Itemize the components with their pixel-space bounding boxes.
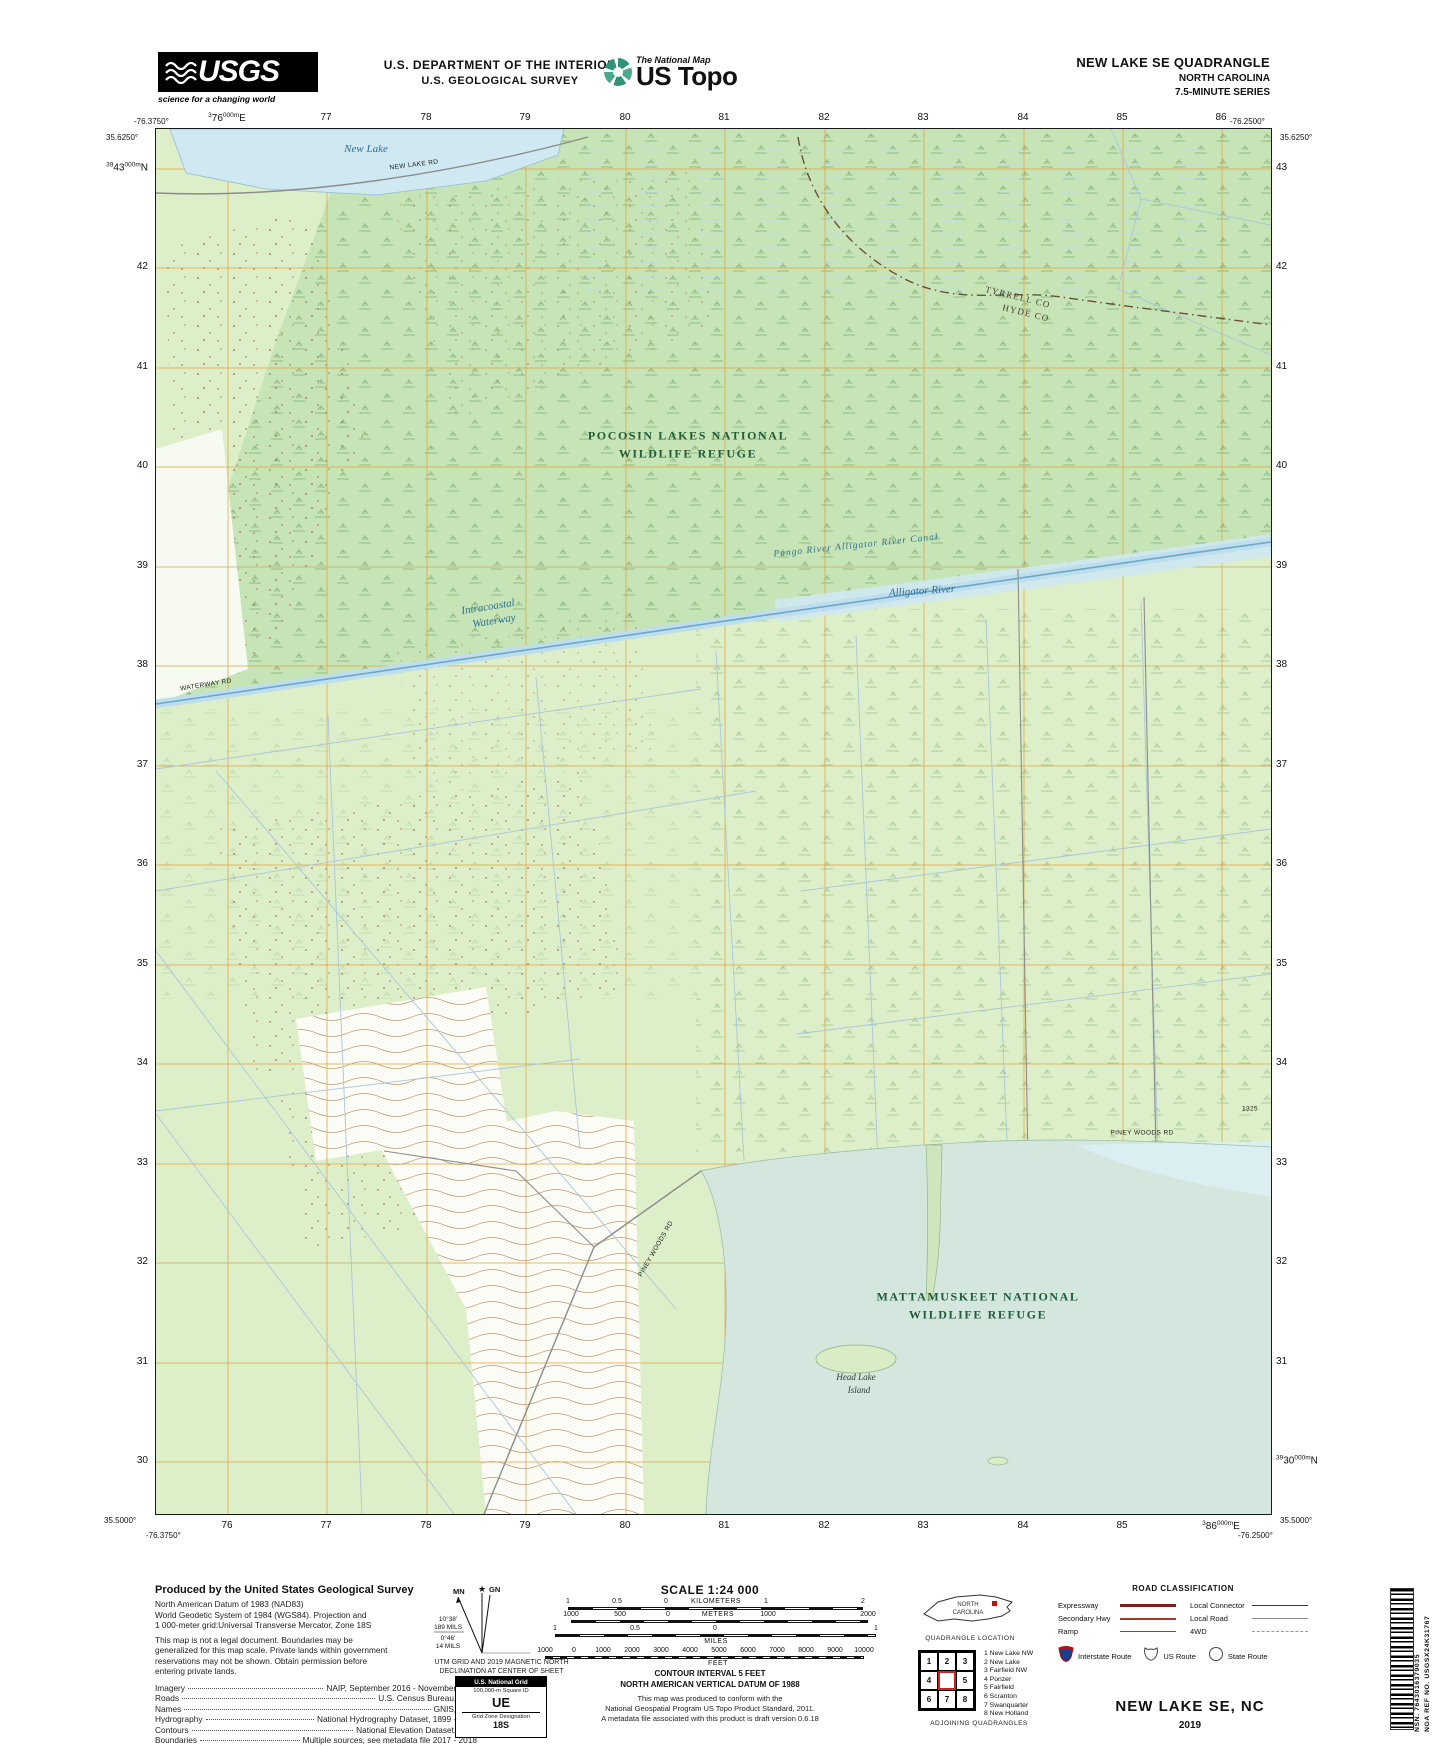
grid-label-left: 40 <box>137 460 148 471</box>
adjoining-cell-4: 4 <box>920 1671 938 1690</box>
corner-coord-ne-lat: 35.6250° <box>1280 133 1312 142</box>
scalebar-tick: 9000 <box>827 1647 843 1654</box>
grid-label-bottom: 84 <box>1017 1520 1028 1531</box>
scalebar-stripe <box>555 1634 876 1637</box>
road-class-label: Ramp <box>1058 1627 1120 1636</box>
grid-label-right: 40 <box>1276 460 1287 471</box>
usgs-tagline: science for a changing world <box>158 94 338 104</box>
scalebar-tick: 7000 <box>769 1647 785 1654</box>
adjoining-name: 4 Ponzer <box>984 1676 1068 1685</box>
scalebar-tick: 0 <box>664 1598 668 1605</box>
grid-label-top: 78 <box>420 112 431 123</box>
grid-labels-right: 434241403938373635343332313930000mN <box>1274 128 1320 1513</box>
quad-name: NEW LAKE SE QUADRANGLE <box>950 55 1270 70</box>
road-class-line-fourwd <box>1252 1631 1308 1632</box>
credit-row-roads: RoadsU.S. Census Bureau, 2016 <box>155 1693 477 1704</box>
grid-label-top: 85 <box>1116 112 1127 123</box>
grid-label-bottom: 82 <box>818 1520 829 1531</box>
scalebar-stripe <box>545 1656 864 1659</box>
road-class-label: Expressway <box>1058 1601 1120 1610</box>
corner-coord-se-lon: -76.2500° <box>1238 1531 1273 1540</box>
grid-label-top: 82 <box>818 112 829 123</box>
adjoining-names: 1 New Lake NW2 New Lake3 Fairfield NW4 P… <box>984 1650 1068 1719</box>
svg-text:GN: GN <box>489 1585 500 1594</box>
shield-interstate-icon <box>1058 1645 1074 1667</box>
grid-labels-left: 3943000mN42414039383736353433323130 <box>104 128 150 1513</box>
road-class-label: Secondary Hwy <box>1058 1614 1120 1623</box>
usgs-logo: USGS <box>158 52 318 92</box>
grid-label-left: 35 <box>137 958 148 969</box>
corner-coord-sw-lon: -76.3750° <box>146 1531 181 1540</box>
road-class-line-connector <box>1252 1605 1308 1606</box>
grid-label-top: 84 <box>1017 112 1028 123</box>
grid-labels-bottom: 76777879808182838485386000mE <box>155 1520 1270 1534</box>
adjoining-name: 7 Swanquarter <box>984 1702 1068 1711</box>
scalebar-tick: 2000 <box>624 1647 640 1654</box>
grid-label-bottom: 80 <box>619 1520 630 1531</box>
map-canvas: New LakeNEW LAKE RDPOCOSIN LAKES NATIONA… <box>155 128 1272 1515</box>
national-map-icon <box>604 58 632 86</box>
usgs-wave-icon <box>164 58 198 86</box>
national-map-logo: The National Map US Topo <box>604 55 737 88</box>
adjoining-grid: 12345678 <box>918 1650 976 1711</box>
road-class-label: Local Road <box>1190 1614 1252 1623</box>
scalebar-unit: FEET <box>708 1660 728 1667</box>
road-class-row-ramp: Ramp <box>1058 1625 1176 1638</box>
vertical-datum: NORTH AMERICAN VERTICAL DATUM OF 1988 <box>520 1679 900 1690</box>
conformance-note: This map was produced to conform with th… <box>520 1694 900 1724</box>
scale-bars: 10.5012KILOMETERS1000500010002000METERS1… <box>520 1599 900 1663</box>
credit-leader <box>182 1698 375 1699</box>
grid-label-bottom: 78 <box>420 1520 431 1531</box>
scalebar-unit: METERS <box>702 1611 734 1618</box>
route-shields: Interstate RouteUS RouteState Route <box>1058 1645 1308 1667</box>
credit-row-imagery: ImageryNAIP, September 2016 - November 2… <box>155 1683 477 1694</box>
shield-interstate: Interstate Route <box>1058 1645 1131 1667</box>
road-classification-title: ROAD CLASSIFICATION <box>1058 1584 1308 1593</box>
barcode-nsn: NSN. 7643016379035 <box>1414 1582 1421 1732</box>
topo-map-graphic <box>156 129 1271 1514</box>
svg-text:NORTH: NORTH <box>957 1602 978 1608</box>
road-class-row-expressway: Expressway <box>1058 1599 1176 1612</box>
grid-label-top: 83 <box>917 112 928 123</box>
scalebar-tick: 2 <box>861 1598 865 1605</box>
grid-label-left: 31 <box>137 1356 148 1367</box>
adjoining-name: 1 New Lake NW <box>984 1650 1068 1659</box>
scalebar-tick: 1000 <box>595 1647 611 1654</box>
credit-rows: ImageryNAIP, September 2016 - November 2… <box>155 1683 477 1746</box>
contour-interval: CONTOUR INTERVAL 5 FEET <box>520 1668 900 1679</box>
scalebar-tick: 0 <box>713 1625 717 1632</box>
corner-coord-se-lat: 35.5000° <box>1280 1516 1312 1525</box>
road-class-row-connector: Local Connector <box>1190 1599 1308 1612</box>
contour-note: CONTOUR INTERVAL 5 FEET NORTH AMERICAN V… <box>520 1668 900 1690</box>
adjoining-name: 8 New Holland <box>984 1710 1068 1719</box>
scalebar-tick: 0.5 <box>630 1625 640 1632</box>
grid-label-left: 37 <box>137 759 148 770</box>
scalebar-tick: 1000 <box>537 1647 553 1654</box>
svg-text:189 MILS: 189 MILS <box>434 1624 462 1631</box>
scalebar-tick: 0 <box>666 1611 670 1618</box>
scalebar-tick: 500 <box>614 1611 626 1618</box>
scalebar-tick: 4000 <box>682 1647 698 1654</box>
grid-label-top: 81 <box>718 112 729 123</box>
credit-row-boundaries: BoundariesMultiple sources; see metadata… <box>155 1735 477 1746</box>
corner-coord-nw-lon: -76.3750° <box>134 117 169 126</box>
credit-value: Multiple sources; see metadata file 2017… <box>303 1735 477 1746</box>
road-class-label: 4WD <box>1190 1627 1252 1636</box>
credit-key: Roads <box>155 1693 179 1704</box>
scalebar-stripe <box>568 1607 863 1610</box>
scalebar-tick: 1 <box>566 1598 570 1605</box>
scalebar-miles: 10.501MILES <box>520 1626 900 1639</box>
scalebar-unit: KILOMETERS <box>691 1598 741 1605</box>
credit-key: Boundaries <box>155 1735 197 1746</box>
credit-row-hydrography: HydrographyNational Hydrography Dataset,… <box>155 1714 477 1725</box>
adjoining-name: 3 Fairfield NW <box>984 1667 1068 1676</box>
grid-label-left: 3943000mN <box>106 161 148 173</box>
road-class-line-secondary <box>1120 1618 1176 1620</box>
grid-label-bottom: 76 <box>221 1520 232 1531</box>
scalebar-tick: 3000 <box>653 1647 669 1654</box>
grid-label-left: 34 <box>137 1057 148 1068</box>
grid-label-right: 36 <box>1276 858 1287 869</box>
svg-text:14 MILS: 14 MILS <box>436 1643 461 1650</box>
usgs-logo-text: USGS <box>198 57 279 87</box>
adjoining-quadrangles: 12345678 1 New Lake NW2 New Lake3 Fairfi… <box>918 1650 1068 1719</box>
sheet-title: NEW LAKE SE, NC <box>1080 1698 1300 1715</box>
road-class-left-column: ExpresswaySecondary HwyRamp <box>1058 1599 1176 1638</box>
grid-label-bottom: 83 <box>917 1520 928 1531</box>
road-class-right-column: Local ConnectorLocal Road4WD <box>1190 1599 1308 1638</box>
credit-leader <box>206 1719 314 1720</box>
grid-label-right: 33 <box>1276 1157 1287 1168</box>
scalebar-meters: 1000500010002000METERS <box>520 1612 900 1625</box>
adjoining-caption: ADJOINING QUADRANGLES <box>904 1720 1054 1727</box>
grid-label-right: 35 <box>1276 958 1287 969</box>
quadrangle-location: NORTH CAROLINA QUADRANGLE LOCATION <box>900 1590 1040 1642</box>
us-topo-text: US Topo <box>636 65 737 88</box>
road-class-row-secondary: Secondary Hwy <box>1058 1612 1176 1625</box>
shield-state-icon <box>1208 1646 1224 1667</box>
grid-label-right: 3930000mN <box>1276 1454 1318 1466</box>
adjoining-cell-3: 3 <box>956 1652 974 1671</box>
usgs-topo-sheet: USGS science for a changing world U.S. D… <box>0 0 1445 1746</box>
scalebar-tick: 1 <box>764 1598 768 1605</box>
shield-label: US Route <box>1163 1652 1196 1661</box>
grid-label-right: 39 <box>1276 560 1287 571</box>
svg-text:10°38': 10°38' <box>439 1615 457 1623</box>
quadrangle-location-caption: QUADRANGLE LOCATION <box>900 1635 1040 1642</box>
grid-labels-top: 376000mE77787980818283848586 <box>155 112 1270 126</box>
shield-state: State Route <box>1208 1646 1268 1667</box>
grid-label-left: 38 <box>137 659 148 670</box>
sheet-year: 2019 <box>1080 1720 1300 1731</box>
credit-row-names: NamesGNIS, 1980 <box>155 1704 477 1715</box>
credit-leader <box>188 1688 323 1689</box>
road-class-row-fourwd: 4WD <box>1190 1625 1308 1638</box>
credit-key: Imagery <box>155 1683 185 1694</box>
grid-label-bottom: 85 <box>1116 1520 1127 1531</box>
adjoining-cell-2: 2 <box>938 1652 956 1671</box>
grid-label-top: 80 <box>619 112 630 123</box>
scalebar-tick: 0 <box>572 1647 576 1654</box>
corner-coord-sw-lat: 35.5000° <box>104 1516 136 1525</box>
corner-coord-ne-lon: -76.2500° <box>1230 117 1265 126</box>
scalebar-tick: 1000 <box>760 1611 776 1618</box>
grid-label-bottom: 77 <box>320 1520 331 1531</box>
scalebar-tick: 6000 <box>740 1647 756 1654</box>
grid-label-top: 77 <box>320 112 331 123</box>
adjoining-cell-6: 6 <box>920 1690 938 1709</box>
grid-label-right: 38 <box>1276 659 1287 670</box>
grid-label-right: 43 <box>1276 162 1287 173</box>
scalebar-tick: 1000 <box>563 1611 579 1618</box>
grid-label-right: 32 <box>1276 1256 1287 1267</box>
road-classification: ROAD CLASSIFICATION ExpresswaySecondary … <box>1058 1584 1308 1667</box>
grid-label-bottom: 79 <box>519 1520 530 1531</box>
adjoining-name: 6 Scranton <box>984 1693 1068 1702</box>
conform-line: This map was produced to conform with th… <box>520 1694 900 1704</box>
grid-label-left: 36 <box>137 858 148 869</box>
quadrangle-title: NEW LAKE SE QUADRANGLE NORTH CAROLINA 7.… <box>950 55 1270 98</box>
grid-label-left: 30 <box>137 1455 148 1466</box>
road-class-line-expressway <box>1120 1604 1176 1607</box>
shield-label: Interstate Route <box>1078 1652 1131 1661</box>
grid-label-left: 42 <box>137 261 148 272</box>
adjoining-cell-8: 8 <box>956 1690 974 1709</box>
scalebar-feet: 1000010002000300040005000600070008000900… <box>520 1648 900 1661</box>
grid-label-top: 376000mE <box>208 112 246 124</box>
conform-line: A metadata file associated with this pro… <box>520 1714 900 1724</box>
grid-label-right: 31 <box>1276 1356 1287 1367</box>
credit-leader <box>200 1740 300 1741</box>
conform-line: National Geospatial Program US Topo Prod… <box>520 1704 900 1714</box>
credit-value: National Hydrography Dataset, 1899 - 201… <box>317 1714 477 1725</box>
grid-label-bottom: 386000mE <box>1202 1520 1240 1532</box>
shield-label: State Route <box>1228 1652 1268 1661</box>
sheet-title-block: NEW LAKE SE, NC 2019 <box>1080 1698 1300 1731</box>
adjoining-name: 5 Fairfield <box>984 1684 1068 1693</box>
svg-text:★: ★ <box>478 1584 486 1594</box>
scalebar-tick: 8000 <box>798 1647 814 1654</box>
credit-key: Hydrography <box>155 1714 203 1725</box>
quad-state: NORTH CAROLINA <box>950 73 1270 84</box>
grid-label-right: 37 <box>1276 759 1287 770</box>
scalebar-tick: 1 <box>553 1625 557 1632</box>
adjoining-cell-5: 5 <box>956 1671 974 1690</box>
barcode <box>1390 1588 1414 1730</box>
grid-label-left: 32 <box>137 1256 148 1267</box>
adjoining-cell-1: 1 <box>920 1652 938 1671</box>
scalebar-tick: 10000 <box>854 1647 873 1654</box>
svg-text:CAROLINA: CAROLINA <box>953 1610 984 1616</box>
road-class-line-localroad <box>1252 1618 1308 1619</box>
corner-coord-nw-lat: 35.6250° <box>106 133 138 142</box>
adjoining-cell-7: 7 <box>938 1690 956 1709</box>
quad-location-marker <box>992 1601 997 1606</box>
road-class-label: Local Connector <box>1190 1601 1252 1610</box>
credit-row-contours: ContoursNational Elevation Dataset, 2015 <box>155 1725 477 1736</box>
grid-label-bottom: 81 <box>718 1520 729 1531</box>
road-class-line-ramp <box>1120 1631 1176 1632</box>
adjoining-name: 2 New Lake <box>984 1659 1068 1668</box>
grid-label-right: 41 <box>1276 361 1287 372</box>
credit-leader <box>192 1730 353 1731</box>
shield-us-icon <box>1143 1646 1159 1666</box>
grid-label-right: 34 <box>1276 1057 1287 1068</box>
grid-label-top: 79 <box>519 112 530 123</box>
north-carolina-outline: NORTH CAROLINA <box>922 1590 1018 1626</box>
quad-series: 7.5-MINUTE SERIES <box>950 87 1270 98</box>
svg-text:0°46': 0°46' <box>441 1634 456 1642</box>
grid-label-left: 41 <box>137 361 148 372</box>
grid-label-top: 86 <box>1215 112 1226 123</box>
adjoining-cell-current <box>938 1671 956 1690</box>
scalebar-stripe <box>571 1620 868 1623</box>
scalebar-tick: 0.5 <box>612 1598 622 1605</box>
scalebar-tick: 1 <box>874 1625 878 1632</box>
scale-title: SCALE 1:24 000 <box>520 1583 900 1597</box>
scalebar-unit: MILES <box>704 1638 728 1645</box>
grid-label-left: 39 <box>137 560 148 571</box>
credit-key: Names <box>155 1704 181 1715</box>
grid-label-left: 33 <box>137 1157 148 1168</box>
road-class-row-localroad: Local Road <box>1190 1612 1308 1625</box>
credit-leader <box>184 1709 430 1710</box>
scalebar-tick: 2000 <box>860 1611 876 1618</box>
shield-us: US Route <box>1143 1646 1196 1666</box>
grid-label-right: 42 <box>1276 261 1287 272</box>
svg-text:MN: MN <box>453 1587 465 1596</box>
barcode-ref: NGA REF NO. USGSX24K31767 <box>1424 1582 1431 1732</box>
scalebar-tick: 5000 <box>711 1647 727 1654</box>
credit-key: Contours <box>155 1725 189 1736</box>
